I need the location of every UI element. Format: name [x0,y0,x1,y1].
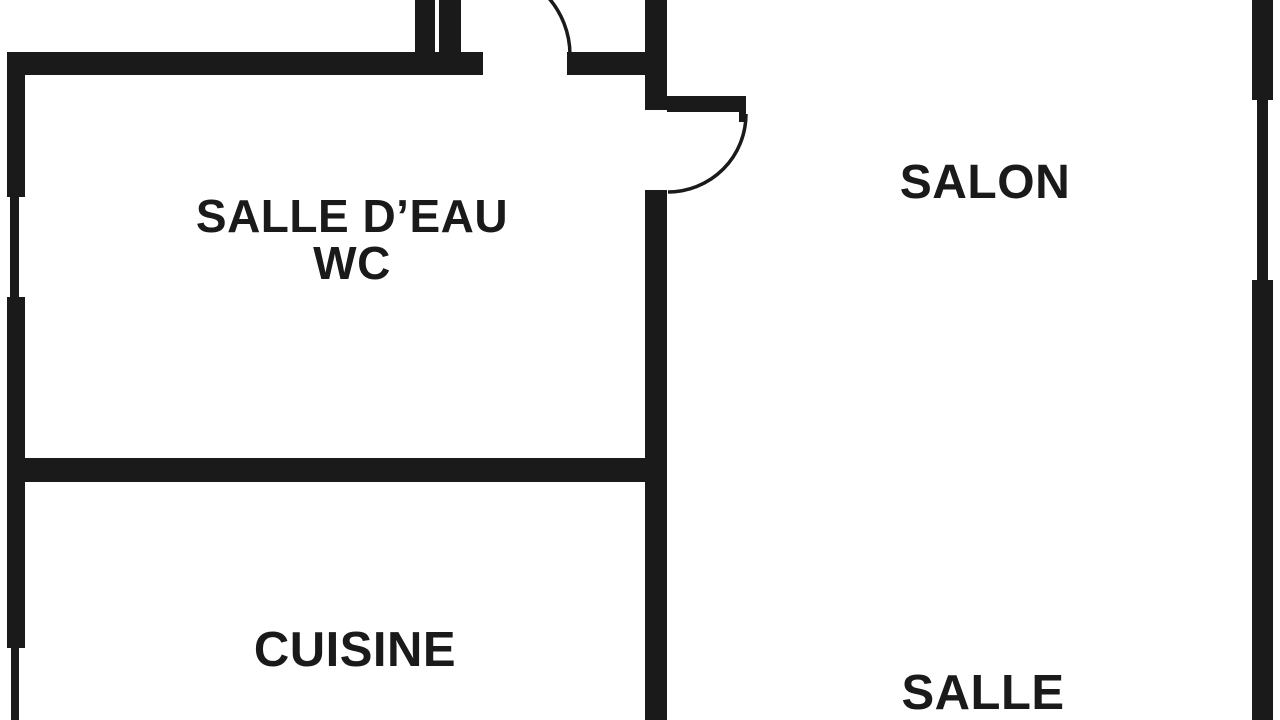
room-label-wc: WC [196,240,508,287]
wall-left-upper [7,52,25,197]
wall-duct-bar-right [439,0,461,56]
room-label-salle-deau: SALLE D’EAU WC [196,193,508,287]
room-label-salle: SALLE [901,669,1064,718]
wall-top-left [7,52,483,75]
salon-door-swing-arc [668,114,746,192]
wall-right-upper [1252,0,1273,100]
wall-right-main [1252,280,1273,720]
room-label-cuisine: CUISINE [254,626,456,675]
wall-middle-horizontal [7,458,666,482]
wall-central-main [645,190,667,720]
window-left [10,197,19,297]
wall-central-upper [645,0,667,110]
window-right [1257,100,1268,280]
wall-top-right [567,52,645,75]
room-label-salon: SALON [900,159,1071,207]
wall-salon-door-stub [667,96,746,112]
window-left-lower [11,648,19,720]
entrance-door-swing-arc [483,0,570,55]
floor-plan-walls [0,0,1280,720]
floor-plan: SALLE D’EAU WC SALON CUISINE SALLE [0,0,1280,720]
room-label-salle-deau-line1: SALLE D’EAU [196,193,508,240]
wall-duct-bar-left [415,0,435,56]
